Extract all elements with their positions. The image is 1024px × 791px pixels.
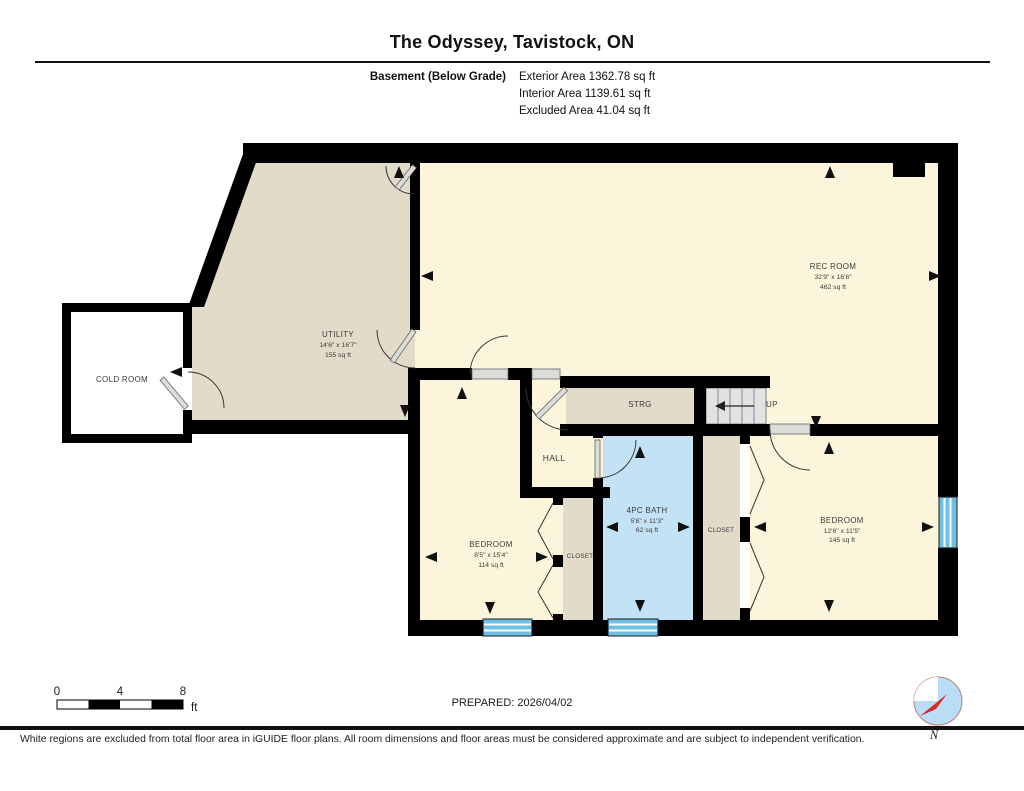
- compass: N: [914, 677, 962, 742]
- floorplan-page: The Odyssey, Tavistock, ON Basement (Bel…: [0, 0, 1024, 791]
- rec-bedroom1-lintel: [472, 369, 508, 379]
- rec-room-area: 462 sq ft: [820, 284, 846, 291]
- bedroom1-dims: 8'5" x 15'4": [474, 552, 508, 559]
- bedroom2-label: BEDROOM: [820, 516, 863, 525]
- stairs-up-label: UP: [766, 400, 778, 409]
- floor-plan-svg: COLD ROOM UTILITY 14'6" x 16'7" 155 sq f…: [0, 0, 1024, 791]
- bath-dims: 5'6" x 11'3": [631, 518, 665, 525]
- disclaimer-text: White regions are excluded from total fl…: [20, 734, 1008, 745]
- prepared-date: PREPARED: 2026/04/02: [0, 697, 1024, 709]
- bedroom2-door-lintel: [770, 424, 810, 434]
- utility-dims: 14'6" x 16'7": [319, 342, 357, 349]
- cold-room-label: COLD ROOM: [96, 375, 148, 384]
- strg-label: STRG: [628, 400, 651, 409]
- window-bedroom2: [939, 497, 957, 548]
- cold-room-floor: [71, 312, 183, 434]
- staircase: [706, 388, 766, 424]
- rec-hall-opening: [532, 369, 560, 379]
- hall-label: HALL: [543, 453, 565, 463]
- footer-divider: [0, 726, 1024, 730]
- utility-floor: [192, 153, 415, 428]
- utility-label: UTILITY: [322, 330, 354, 339]
- rec-room-label: REC ROOM: [810, 262, 856, 271]
- bedroom1-area: 114 sq ft: [478, 562, 504, 569]
- bedroom1-label: BEDROOM: [469, 540, 512, 549]
- closet2-label: CLOSET: [708, 527, 734, 534]
- window-bedroom1: [483, 619, 532, 636]
- bath-label: 4PC BATH: [627, 506, 668, 515]
- bedroom2-dims: 12'6" x 11'5": [824, 528, 861, 535]
- bedroom2-area: 145 sq ft: [829, 537, 855, 544]
- rec-room-dims: 32'9" x 16'6": [814, 274, 852, 281]
- bath-door-leaf: [595, 440, 600, 478]
- closet1-label: CLOSET: [567, 553, 593, 560]
- bath-area: 62 sq ft: [636, 527, 658, 534]
- utility-area: 155 sq ft: [325, 352, 351, 359]
- window-bath: [608, 619, 658, 636]
